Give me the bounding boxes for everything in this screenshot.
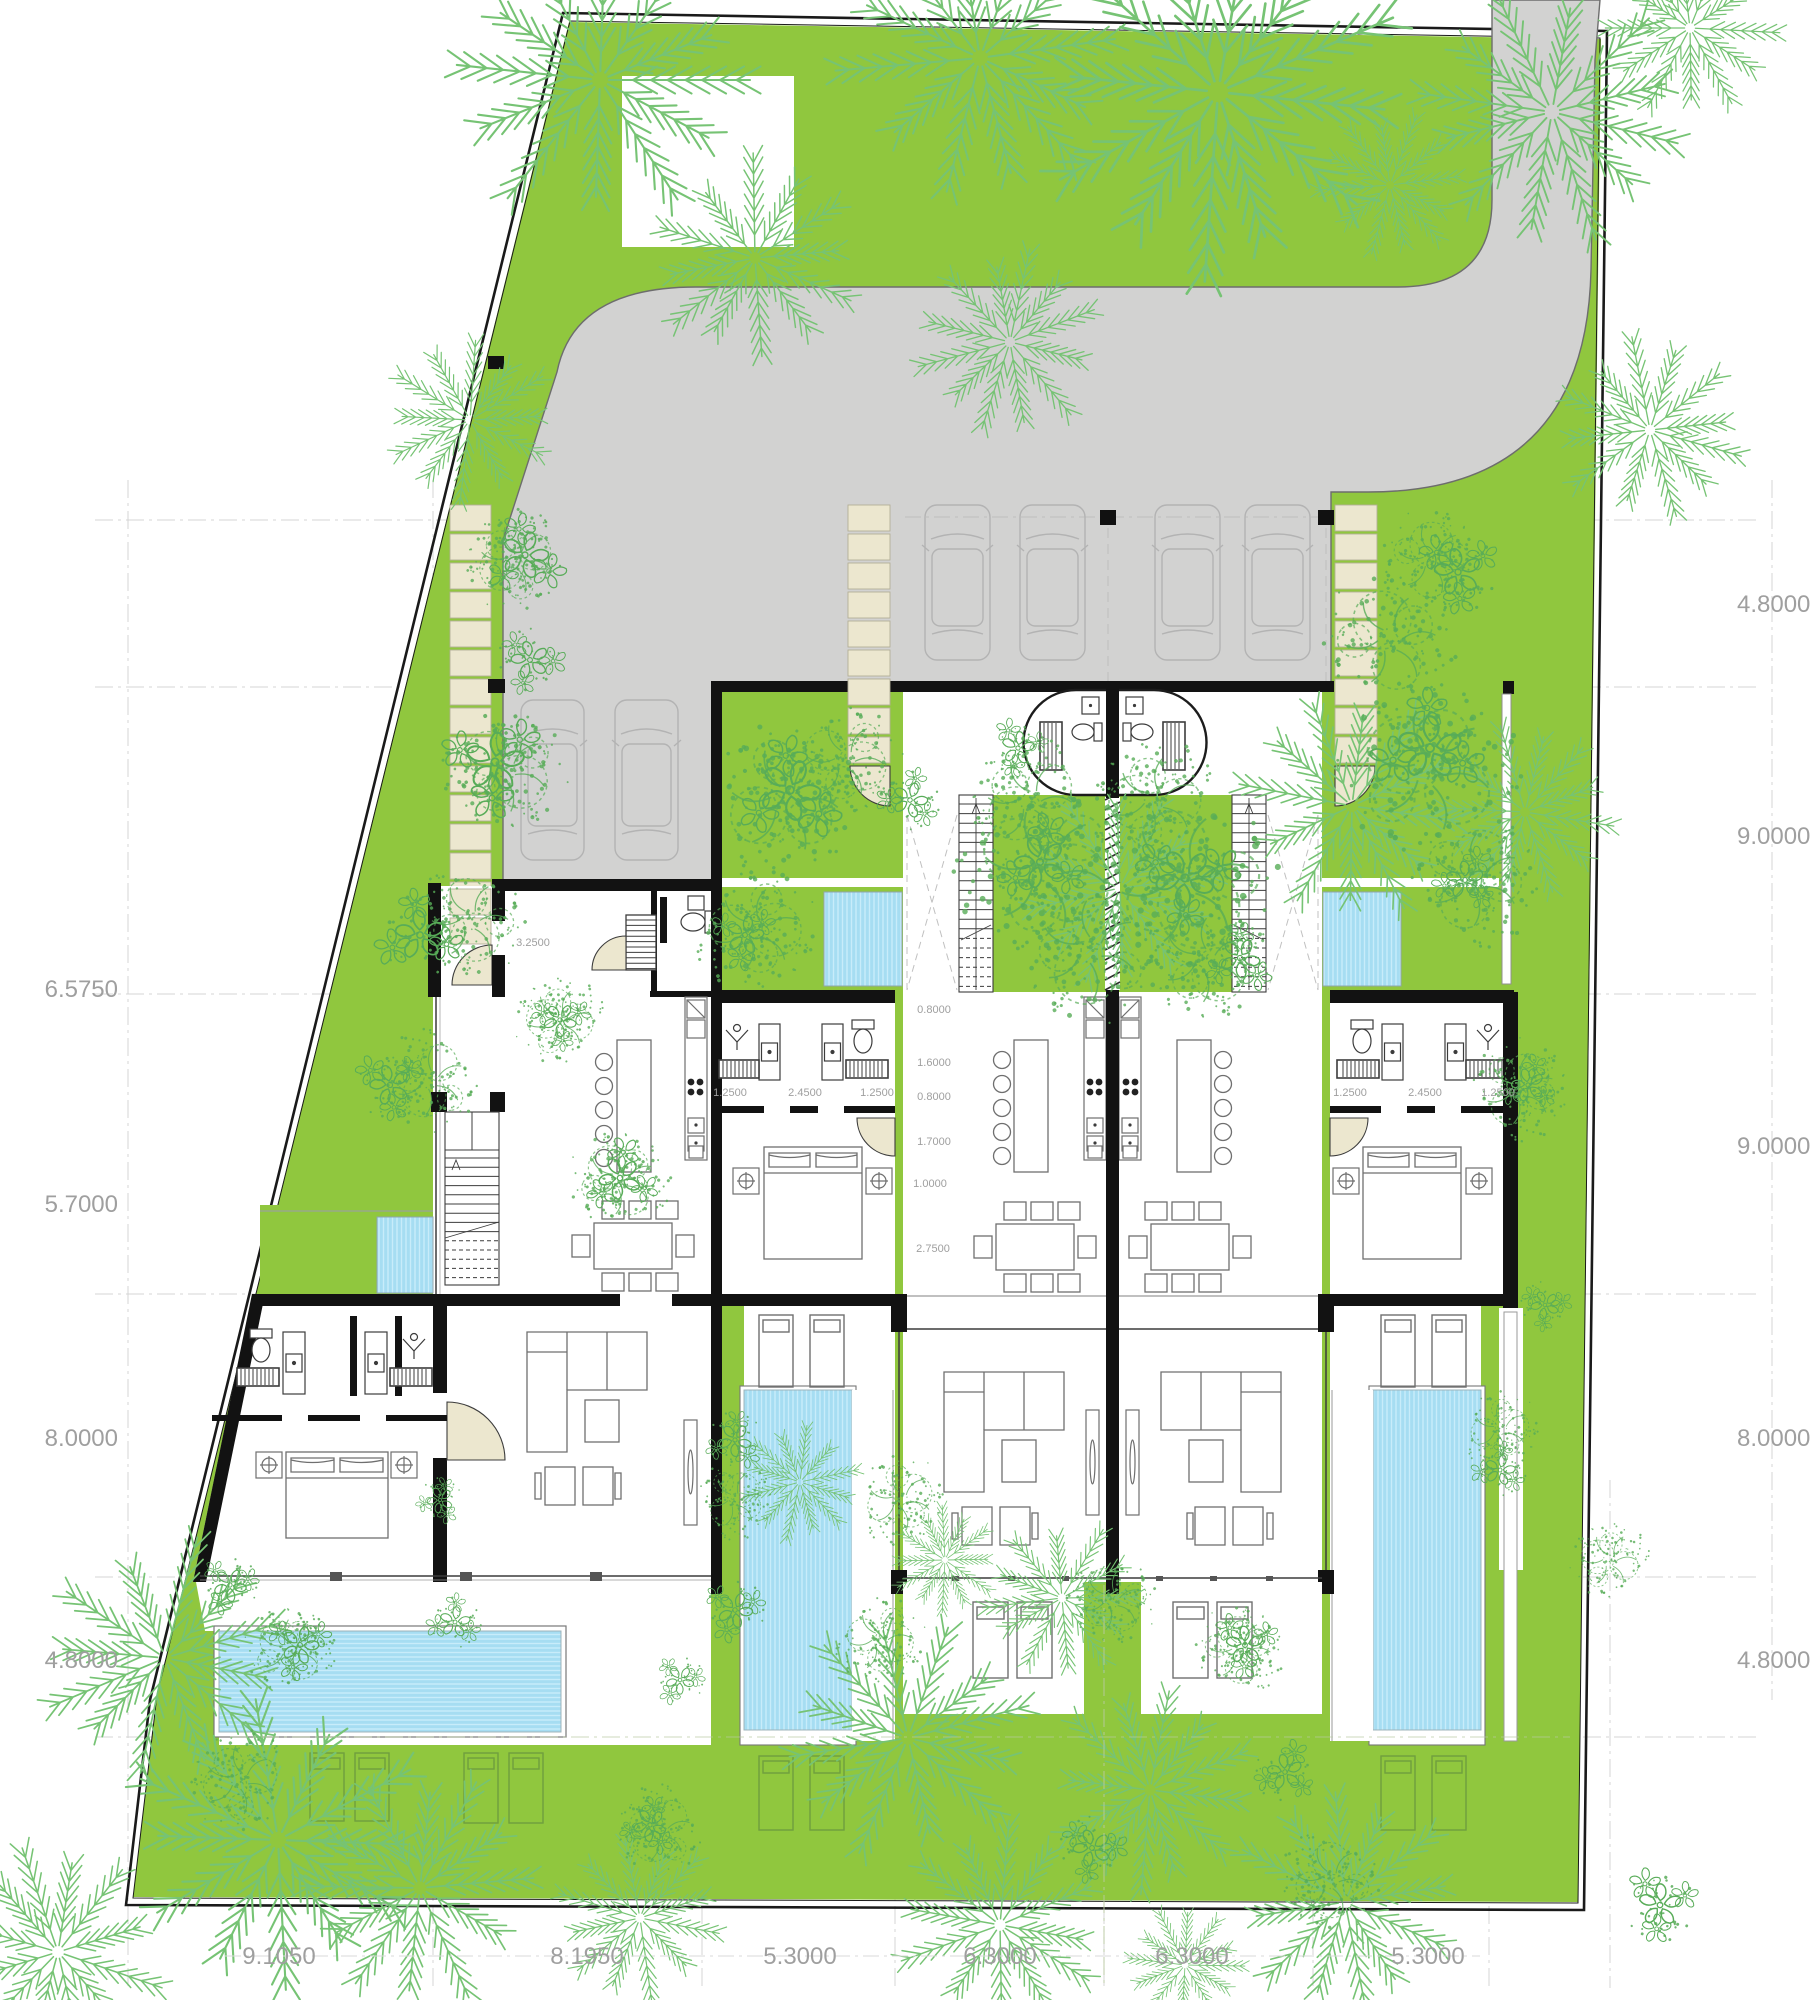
svg-text:2.4500: 2.4500 — [1408, 1087, 1442, 1099]
svg-text:9.1050: 9.1050 — [242, 1943, 315, 1970]
svg-text:2.4500: 2.4500 — [788, 1087, 822, 1099]
svg-text:9.0000: 9.0000 — [1737, 823, 1810, 850]
svg-text:5.3000: 5.3000 — [1391, 1943, 1464, 1970]
svg-text:8.0000: 8.0000 — [45, 1425, 118, 1452]
svg-text:1.0000: 1.0000 — [913, 1178, 947, 1190]
svg-text:1.2500: 1.2500 — [860, 1087, 894, 1099]
svg-text:1.2500: 1.2500 — [1481, 1087, 1515, 1099]
svg-text:6.3000: 6.3000 — [1155, 1943, 1228, 1970]
svg-text:2.7500: 2.7500 — [916, 1243, 950, 1255]
svg-text:1.6000: 1.6000 — [917, 1057, 951, 1069]
svg-text:4.8000: 4.8000 — [45, 1647, 118, 1674]
svg-text:1.2500: 1.2500 — [713, 1087, 747, 1099]
svg-text:5.3000: 5.3000 — [763, 1943, 836, 1970]
svg-text:3.2500: 3.2500 — [516, 937, 550, 949]
svg-text:1.2500: 1.2500 — [1333, 1087, 1367, 1099]
svg-text:6.5750: 6.5750 — [45, 976, 118, 1003]
svg-text:0.8000: 0.8000 — [917, 1004, 951, 1016]
svg-text:0.8000: 0.8000 — [917, 1091, 951, 1103]
svg-text:5.7000: 5.7000 — [45, 1191, 118, 1218]
svg-text:8.1950: 8.1950 — [550, 1943, 623, 1970]
svg-text:4.8000: 4.8000 — [1737, 591, 1810, 618]
svg-text:9.0000: 9.0000 — [1737, 1133, 1810, 1160]
svg-text:1.7000: 1.7000 — [917, 1136, 951, 1148]
svg-text:8.0000: 8.0000 — [1737, 1425, 1810, 1452]
svg-text:4.8000: 4.8000 — [1737, 1647, 1810, 1674]
svg-text:6.3000: 6.3000 — [963, 1943, 1036, 1970]
